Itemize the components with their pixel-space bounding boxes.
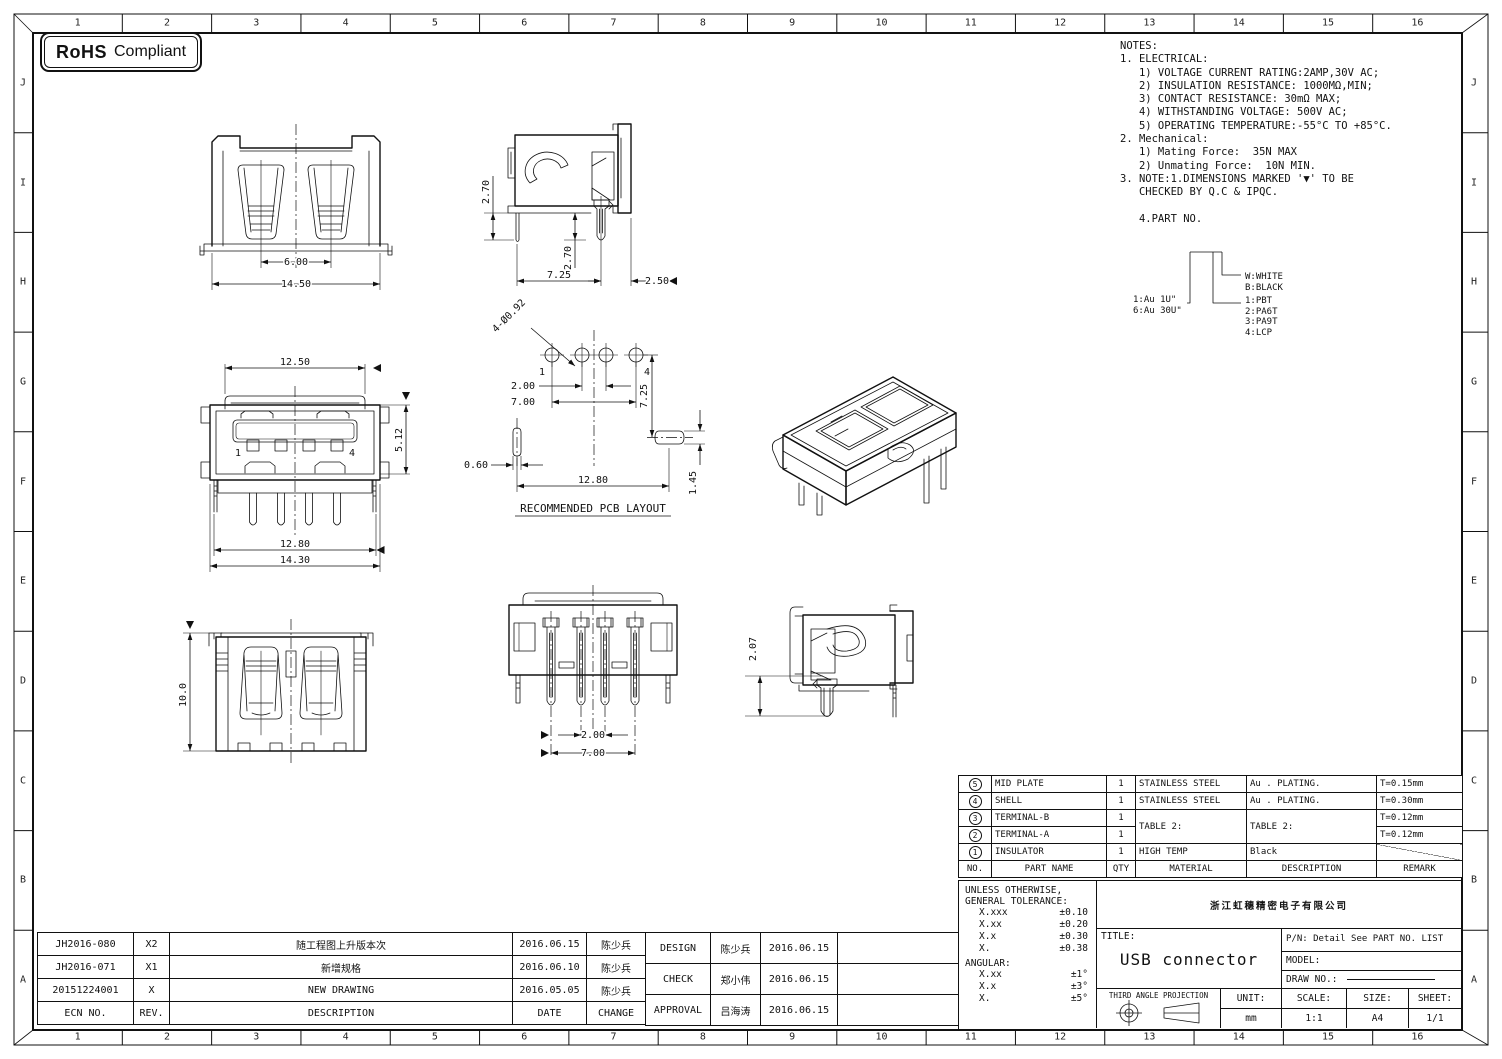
company-name: 浙江虹穗精密电子有限公司 [1097, 881, 1461, 929]
front-dim-width: 14.50 [281, 279, 311, 290]
top-dim-legs: 12.80 [280, 539, 310, 550]
frame-col-label-top: 12 [1054, 18, 1066, 29]
bom-row-3: 3 TERMINAL-B 1 TABLE 2: TABLE 2: T=0.12m… [959, 810, 1463, 827]
notes-line: CHECKED BY Q.C & IPQC. [1120, 186, 1472, 199]
notes-line: 1. ELECTRICAL: [1120, 53, 1472, 66]
frame-col-label-bottom: 2 [164, 1032, 170, 1043]
view-top: 12.50 5.12 12.80 14.30 1 4 [183, 356, 433, 596]
sheet-cell: SHEET: 1/1 [1409, 989, 1461, 1028]
notes-line: 4) WITHSTANDING VOLTAGE: 500V AC; [1120, 106, 1472, 119]
frame-col-label-top: 5 [432, 18, 438, 29]
legend-item: 2:PA6T [1245, 307, 1278, 318]
view-rear: 10.0 [173, 603, 408, 783]
tolerance-key: X.x [979, 931, 996, 943]
projection-cell: THIRD ANGLE PROJECTION [1097, 989, 1221, 1028]
scale-label: SCALE: [1282, 989, 1346, 1009]
tolerance-row: X.x±3° [965, 981, 1096, 993]
pcb-caption: RECOMMENDED PCB LAYOUT [520, 502, 666, 515]
notes-line: 5) OPERATING TEMPERATURE:-55°C TO +85°C. [1120, 120, 1472, 133]
tolerance-angular-rows: X.xx±1°X.x±3°X.±5° [965, 969, 1096, 1005]
rev-header-ecn: ECN NO. [38, 1002, 134, 1025]
frame-col-label-bottom: 11 [965, 1032, 977, 1043]
top-dim-body: 14.30 [280, 555, 310, 566]
bom-material: HIGH TEMP [1136, 844, 1247, 861]
approval-row: APPROVAL 吕海涛 2016.06.15 [646, 995, 959, 1026]
rev-desc: 新增规格 [170, 956, 513, 979]
pcb-dim-slot-h: 1.45 [688, 471, 699, 495]
bom-table: 5 MID PLATE 1 STAINLESS STEEL Au . PLATI… [958, 775, 1463, 878]
bom-qty: 1 [1107, 844, 1136, 861]
bom-row-4: 4 SHELL 1 STAINLESS STEEL Au . PLATING. … [959, 793, 1463, 810]
tolerance-line2: GENERAL TOLERANCE: [965, 896, 1096, 907]
bom-header-qty: QTY [1107, 861, 1136, 878]
rev-ecn: 20151224001 [38, 979, 134, 1002]
bom-header-remark: REMARK [1377, 861, 1463, 878]
strip-divider [1097, 988, 1461, 989]
bom-part: TERMINAL-A [992, 827, 1107, 844]
legend-item: B:BLACK [1245, 283, 1283, 294]
frame-col-label-bottom: 6 [521, 1032, 527, 1043]
bom-header-row: NO. PART NAME QTY MATERIAL DESCRIPTION R… [959, 861, 1463, 878]
pcb-callout: 4-Ø0.92 [490, 297, 528, 335]
frame-col-label-top: 7 [611, 18, 617, 29]
tolerance-value: ±0.10 [1059, 907, 1088, 919]
tolerance-block: UNLESS OTHERWISE, GENERAL TOLERANCE: X.x… [959, 881, 1097, 1028]
frame-col-label-top: 10 [875, 18, 887, 29]
frame-col-label-bottom: 7 [611, 1032, 617, 1043]
tolerance-row: X.±5° [965, 993, 1096, 1005]
side-bottom-dimensions: 2.07 [745, 637, 829, 716]
rev-rev: X [134, 979, 170, 1002]
legend-item: 6:Au 30U" [1133, 306, 1182, 317]
rev-desc: 随工程图上升版本次 [170, 933, 513, 956]
rev-date: 2016.05.05 [513, 979, 587, 1002]
approval-role: APPROVAL [646, 995, 711, 1026]
rev-header-rev: REV. [134, 1002, 170, 1025]
pcb-pin1-label: 1 [539, 367, 545, 378]
bom-desc: Black [1247, 844, 1377, 861]
frame-col-label-top: 16 [1411, 18, 1423, 29]
rev-change: 陈少兵 [587, 933, 646, 956]
approval-table: DESIGN 陈少兵 2016.06.15 CHECK 郑小伟 2016.06.… [645, 932, 959, 1026]
front-dimensions: 6.00 14.50 [212, 124, 380, 290]
tolerance-key: X.x [979, 981, 996, 993]
legend-item: 3:PA9T [1245, 317, 1278, 328]
bom-part: INSULATOR [992, 844, 1107, 861]
sheet-label: SHEET: [1409, 989, 1461, 1009]
frame-row-label-right: I [1471, 177, 1477, 188]
pcb-dim-row: 7.25 [639, 384, 650, 408]
side-top-outline [508, 124, 631, 242]
frame-col-label-top: 2 [164, 18, 170, 29]
frame-col-label-bottom: 1 [75, 1032, 81, 1043]
top-pin4-label: 4 [349, 448, 355, 459]
rev-rev: X1 [134, 956, 170, 979]
tolerance-rows: X.xxx±0.10X.xx±0.20X.x±0.30X.±0.38 [965, 907, 1096, 955]
frame-row-label-left: G [20, 376, 26, 387]
frame-col-label-bottom: 8 [700, 1032, 706, 1043]
legend-material-list: 1:PBT2:PA6T3:PA9T4:LCP [1245, 296, 1278, 338]
notes-line: 4.PART NO. [1120, 213, 1472, 226]
tolerance-value: ±0.30 [1059, 931, 1088, 943]
side-bottom-dim-tail: 2.07 [748, 637, 759, 661]
drawing-sheet: RoHS Compliant NOTES:1. ELECTRICAL: 1) V… [0, 0, 1502, 1059]
tolerance-angular-label: ANGULAR: [965, 958, 1096, 969]
rev-date: 2016.06.15 [513, 933, 587, 956]
circled-number: 4 [969, 795, 982, 808]
bom-part: TERMINAL-B [992, 810, 1107, 827]
approval-empty [838, 995, 959, 1026]
bottom-dim-outer: 7.00 [581, 748, 605, 759]
unit-label: UNIT: [1221, 989, 1281, 1009]
bom-remark: T=0.15mm [1377, 776, 1463, 793]
frame-row-label-right: H [1471, 277, 1477, 288]
bom-no: 2 [959, 827, 992, 844]
side-top-dimensions: 2.70 2.70 7.25 2.50 [481, 176, 677, 287]
tolerance-row: X.±0.38 [965, 943, 1096, 955]
frame-row-label-right: A [1471, 975, 1477, 986]
frame-col-label-bottom: 12 [1054, 1032, 1066, 1043]
bom-desc: Au . PLATING. [1247, 793, 1377, 810]
tolerance-value: ±0.20 [1059, 919, 1088, 931]
notes-line: 2. Mechanical: [1120, 133, 1472, 146]
rev-rev: X2 [134, 933, 170, 956]
legend-item: 1:PBT [1245, 296, 1278, 307]
draw-no-label: DRAW NO.: [1286, 974, 1337, 985]
third-angle-projection-icon [1104, 1000, 1214, 1026]
frame-row-label-right: E [1471, 576, 1477, 587]
bom-header-material: MATERIAL [1136, 861, 1247, 878]
approval-role: DESIGN [646, 933, 711, 964]
notes-line: NOTES: [1120, 40, 1472, 53]
notes-block: NOTES:1. ELECTRICAL: 1) VOLTAGE CURRENT … [1120, 40, 1472, 226]
tolerance-row: X.x±0.30 [965, 931, 1096, 943]
frame-row-label-right: C [1471, 775, 1477, 786]
rohs-badge: RoHS Compliant [40, 32, 202, 72]
frame-col-label-bottom: 10 [875, 1032, 887, 1043]
approval-row: DESIGN 陈少兵 2016.06.15 [646, 933, 959, 964]
frame-row-label-left: F [20, 476, 26, 487]
frame-row-label-left: J [20, 77, 26, 88]
bom-row-5: 5 MID PLATE 1 STAINLESS STEEL Au . PLATI… [959, 776, 1463, 793]
bom-remark-diagonal [1377, 844, 1463, 861]
tolerance-row: X.xx±0.20 [965, 919, 1096, 931]
frame-col-label-top: 13 [1143, 18, 1155, 29]
bom-no: 3 [959, 810, 992, 827]
bom-header-no: NO. [959, 861, 992, 878]
approval-role: CHECK [646, 964, 711, 995]
notes-line: 1) Mating Force: 35N MAX [1120, 146, 1472, 159]
scale-value: 1:1 [1282, 1009, 1346, 1028]
frame-row-label-right: F [1471, 476, 1477, 487]
revision-row: JH2016-080 X2 随工程图上升版本次 2016.06.15 陈少兵 [38, 933, 646, 956]
bom-remark: T=0.12mm [1377, 810, 1463, 827]
approval-date: 2016.06.15 [761, 995, 838, 1026]
legend-item: W:WHITE [1245, 272, 1283, 283]
bom-no: 4 [959, 793, 992, 810]
bom-remark: T=0.30mm [1377, 793, 1463, 810]
frame-col-label-top: 4 [343, 18, 349, 29]
title-cell: TITLE: USB connector [1097, 929, 1282, 989]
frame-col-label-bottom: 3 [253, 1032, 259, 1043]
approval-name: 吕海涛 [711, 995, 761, 1026]
size-cell: SIZE: A4 [1347, 989, 1409, 1028]
notes-line: 2) Unmating Force: 10N MIN. [1120, 160, 1472, 173]
rev-header-date: DATE [513, 1002, 587, 1025]
frame-row-label-right: B [1471, 875, 1477, 886]
model-cell: MODEL: [1282, 952, 1461, 971]
frame-col-label-top: 6 [521, 18, 527, 29]
bom-remark: T=0.12mm [1377, 827, 1463, 844]
frame-col-label-top: 8 [700, 18, 706, 29]
draw-no-blank-line [1347, 979, 1435, 980]
legend-item: 1:Au 1U" [1133, 295, 1182, 306]
top-dim-plate: 12.50 [280, 357, 310, 368]
unit-value: mm [1221, 1009, 1281, 1028]
bom-desc: Au . PLATING. [1247, 776, 1377, 793]
side-top-dim-tail-a: 2.70 [481, 180, 492, 204]
frame-row-label-left: A [20, 975, 26, 986]
tolerance-value: ±3° [1071, 981, 1088, 993]
side-top-dim-span: 7.25 [547, 270, 571, 281]
rev-header-desc: DESCRIPTION [170, 1002, 513, 1025]
draw-no-cell: DRAW NO.: [1282, 971, 1461, 989]
frame-col-label-top: 11 [965, 18, 977, 29]
bom-header-desc: DESCRIPTION [1247, 861, 1377, 878]
rev-header-change: CHANGE [587, 1002, 646, 1025]
unit-cell: UNIT: mm [1221, 989, 1282, 1028]
circled-number: 5 [969, 778, 982, 791]
legend-plating-list: 1:Au 1U"6:Au 30U" [1133, 295, 1182, 316]
bom-part: MID PLATE [992, 776, 1107, 793]
frame-col-label-bottom: 16 [1411, 1032, 1423, 1043]
tolerance-key: X. [979, 943, 990, 955]
approval-date: 2016.06.15 [761, 964, 838, 995]
frame-col-label-top: 3 [253, 18, 259, 29]
approval-row: CHECK 郑小伟 2016.06.15 [646, 964, 959, 995]
rohs-badge-inner-border [44, 36, 198, 68]
notes-line: 3) CONTACT RESISTANCE: 30mΩ MAX; [1120, 93, 1472, 106]
tolerance-key: X. [979, 993, 990, 1005]
top-dim-height: 5.12 [394, 428, 405, 452]
approval-date: 2016.06.15 [761, 933, 838, 964]
tolerance-row: X.xx±1° [965, 969, 1096, 981]
view-isometric [738, 353, 973, 543]
frame-col-label-top: 1 [75, 18, 81, 29]
notes-line: 1) VOLTAGE CURRENT RATING:2AMP,30V AC; [1120, 67, 1472, 80]
revision-row: JH2016-071 X1 新增规格 2016.06.10 陈少兵 [38, 956, 646, 979]
pcb-dimensions: 4-Ø0.92 2.00 7.00 7.25 0.60 12.80 1.45 1… [464, 297, 705, 516]
view-front: 6.00 14.50 [190, 118, 470, 313]
view-pcb-layout: 4-Ø0.92 2.00 7.00 7.25 0.60 12.80 1.45 1… [453, 298, 718, 528]
frame-row-label-right: G [1471, 376, 1477, 387]
frame-col-label-bottom: 14 [1233, 1032, 1245, 1043]
tolerance-key: X.xxx [979, 907, 1008, 919]
tolerance-value: ±0.38 [1059, 943, 1088, 955]
frame-row-label-left: I [20, 177, 26, 188]
approval-empty [838, 933, 959, 964]
pcb-dim-slot-w: 0.60 [464, 460, 488, 471]
projection-label: THIRD ANGLE PROJECTION [1097, 989, 1220, 1000]
frame-row-label-left: D [20, 676, 26, 687]
approval-name: 陈少兵 [711, 933, 761, 964]
pn-cell: P/N: Detail See PART NO. LIST [1282, 929, 1461, 952]
pcb-holes [513, 343, 684, 456]
tolerance-row: X.xxx±0.10 [965, 907, 1096, 919]
rev-ecn: JH2016-080 [38, 933, 134, 956]
pcb-dim-mid: 2.00 [511, 381, 535, 392]
rev-desc: NEW DRAWING [170, 979, 513, 1002]
rear-dim-height: 10.0 [178, 683, 189, 707]
bom-no: 1 [959, 844, 992, 861]
tolerance-key: X.xx [979, 919, 1002, 931]
legend-color-list: W:WHITEB:BLACK [1245, 272, 1283, 293]
notes-line: 2) INSULATION RESISTANCE: 1000MΩ,MIN; [1120, 80, 1472, 93]
legend-item: 4:LCP [1245, 328, 1278, 339]
notes-line: 3. NOTE:1.DIMENSIONS MARKED '▼' TO BE [1120, 173, 1472, 186]
bom-desc-merged: TABLE 2: [1247, 810, 1377, 844]
tolerance-key: X.xx [979, 969, 1002, 981]
revision-table: JH2016-080 X2 随工程图上升版本次 2016.06.15 陈少兵 J… [37, 932, 646, 1025]
revision-row: 20151224001 X NEW DRAWING 2016.05.05 陈少兵 [38, 979, 646, 1002]
bottom-dim-mid: 2.00 [581, 730, 605, 741]
approval-empty [838, 964, 959, 995]
top-pin1-label: 1 [235, 448, 241, 459]
frame-row-label-right: J [1471, 77, 1477, 88]
side-top-dim-tail-b: 2.70 [563, 246, 574, 270]
size-value: A4 [1347, 1009, 1408, 1028]
bom-qty: 1 [1107, 810, 1136, 827]
frame-col-label-top: 9 [789, 18, 795, 29]
bom-material: STAINLESS STEEL [1136, 776, 1247, 793]
size-label: SIZE: [1347, 989, 1408, 1009]
pcb-pin4-label: 4 [644, 367, 650, 378]
side-top-dim-back: 2.50 [645, 276, 669, 287]
view-side-bottom: 2.07 [743, 583, 973, 788]
notes-line [1120, 200, 1472, 213]
circled-number: 2 [969, 829, 982, 842]
circled-number: 3 [969, 812, 982, 825]
scale-cell: SCALE: 1:1 [1282, 989, 1347, 1028]
bom-qty: 1 [1107, 776, 1136, 793]
revision-header-row: ECN NO. REV. DESCRIPTION DATE CHANGE [38, 1002, 646, 1025]
tolerance-value: ±5° [1071, 993, 1088, 1005]
drawing-title: USB connector [1101, 950, 1277, 969]
frame-row-label-left: H [20, 277, 26, 288]
bom-material: STAINLESS STEEL [1136, 793, 1247, 810]
rev-date: 2016.06.10 [513, 956, 587, 979]
bom-material-merged: TABLE 2: [1136, 810, 1247, 844]
frame-row-label-right: D [1471, 676, 1477, 687]
bom-qty: 1 [1107, 827, 1136, 844]
tolerance-line1: UNLESS OTHERWISE, [965, 885, 1096, 896]
iso-outline [772, 377, 956, 515]
rev-change: 陈少兵 [587, 979, 646, 1002]
bom-header-part: PART NAME [992, 861, 1107, 878]
frame-col-label-top: 14 [1233, 18, 1245, 29]
title-label: TITLE: [1101, 931, 1277, 942]
frame-col-label-bottom: 15 [1322, 1032, 1334, 1043]
pcb-dim-slots: 12.80 [578, 475, 608, 486]
view-side-top: 2.70 2.70 7.25 2.50 [468, 118, 693, 318]
frame-row-label-left: E [20, 576, 26, 587]
view-bottom: 2.00 7.00 [488, 583, 713, 788]
side-bottom-outline [790, 605, 913, 717]
rev-change: 陈少兵 [587, 956, 646, 979]
approval-name: 郑小伟 [711, 964, 761, 995]
frame-row-label-left: B [20, 875, 26, 886]
bom-row-1: 1 INSULATOR 1 HIGH TEMP Black [959, 844, 1463, 861]
title-block: UNLESS OTHERWISE, GENERAL TOLERANCE: X.x… [958, 880, 1462, 1030]
frame-col-label-bottom: 9 [789, 1032, 795, 1043]
sheet-value: 1/1 [1409, 1009, 1461, 1028]
frame-col-label-top: 15 [1322, 18, 1334, 29]
bom-no: 5 [959, 776, 992, 793]
pcb-dim-outer: 7.00 [511, 397, 535, 408]
frame-col-label-bottom: 4 [343, 1032, 349, 1043]
rev-ecn: JH2016-071 [38, 956, 134, 979]
frame-col-label-bottom: 5 [432, 1032, 438, 1043]
front-dim-pitch: 6.00 [284, 257, 308, 268]
tolerance-value: ±1° [1071, 969, 1088, 981]
frame-row-label-left: C [20, 775, 26, 786]
circled-number: 1 [969, 846, 982, 859]
frame-col-label-bottom: 13 [1143, 1032, 1155, 1043]
bom-qty: 1 [1107, 793, 1136, 810]
bom-part: SHELL [992, 793, 1107, 810]
